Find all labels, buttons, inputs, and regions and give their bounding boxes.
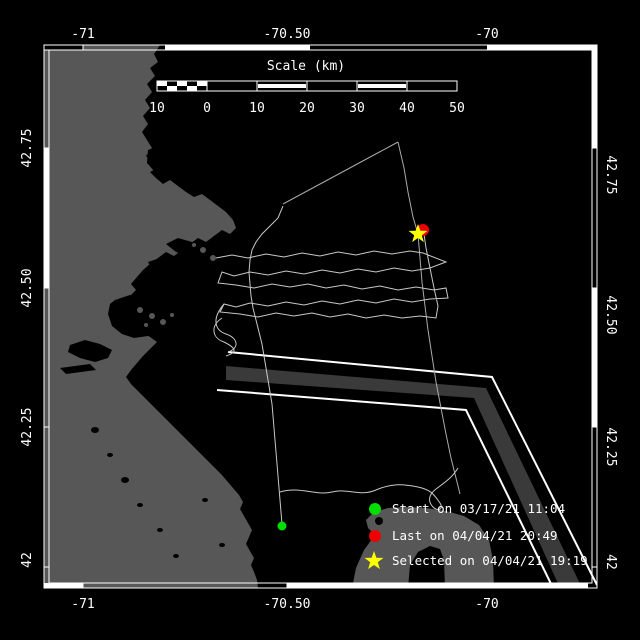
start-legend-icon xyxy=(369,503,381,515)
scale-bar-seg-20-30 xyxy=(307,81,357,91)
scale-bar-title: Scale (km) xyxy=(267,59,345,74)
frame-seg xyxy=(44,45,83,50)
provincetown-curl xyxy=(375,517,383,525)
frame-seg xyxy=(592,45,597,148)
lon-label: -70 xyxy=(475,27,498,42)
drifter-track-map: Scale (km) 10 0 10 20 30 xyxy=(0,0,640,640)
lon-label: -70.50 xyxy=(264,597,311,612)
legend: Start on 03/17/21 11:04 Last on 04/04/21… xyxy=(365,501,588,569)
scale-tick: 40 xyxy=(399,101,415,116)
scale-bar-seg-10-20-stripe xyxy=(258,84,306,88)
lat-label: 42.75 xyxy=(603,155,618,194)
frame-seg xyxy=(165,45,310,50)
scale-tick: 10 xyxy=(249,101,265,116)
scale-tick: 0 xyxy=(203,101,211,116)
scale-bar-seg-30-40-stripe xyxy=(358,84,406,88)
legend-item-selected[interactable]: Selected on 04/04/21 19:19 xyxy=(365,551,588,569)
lon-label: -71 xyxy=(71,597,94,612)
frame-seg xyxy=(287,583,588,588)
legend-start-label: Start on 03/17/21 11:04 xyxy=(392,501,565,516)
lon-label: -71 xyxy=(71,27,94,42)
map-canvas: Scale (km) 10 0 10 20 30 xyxy=(44,45,597,588)
legend-selected-label: Selected on 04/04/21 19:19 xyxy=(392,553,588,568)
scale-tick: 50 xyxy=(449,101,465,116)
lon-label: -70.50 xyxy=(264,27,311,42)
frame-seg xyxy=(44,583,83,588)
last-legend-icon xyxy=(369,530,381,542)
scale-tick: 10 xyxy=(149,101,165,116)
scale-tick: 30 xyxy=(349,101,365,116)
scale-bar-seg-40-50 xyxy=(407,81,457,91)
lon-label: -70 xyxy=(475,597,498,612)
lat-label: 42 xyxy=(603,554,618,570)
lat-label: 42.25 xyxy=(20,407,35,446)
lat-label: 42.50 xyxy=(603,295,618,334)
start-marker[interactable] xyxy=(278,522,287,531)
lat-label: 42 xyxy=(20,552,35,568)
scale-tick: 20 xyxy=(299,101,315,116)
frame-seg xyxy=(44,148,49,288)
lat-label: 42.50 xyxy=(20,268,35,307)
lat-label: 42.25 xyxy=(603,427,618,466)
legend-item-start[interactable]: Start on 03/17/21 11:04 xyxy=(369,501,565,516)
legend-last-label: Last on 04/04/21 20:49 xyxy=(392,528,558,543)
frame-seg xyxy=(487,45,597,50)
frame-seg xyxy=(592,288,597,427)
legend-item-last[interactable]: Last on 04/04/21 20:49 xyxy=(369,528,558,543)
lat-label: 42.75 xyxy=(20,128,35,167)
scale-bar-seg-0-10 xyxy=(207,81,257,91)
